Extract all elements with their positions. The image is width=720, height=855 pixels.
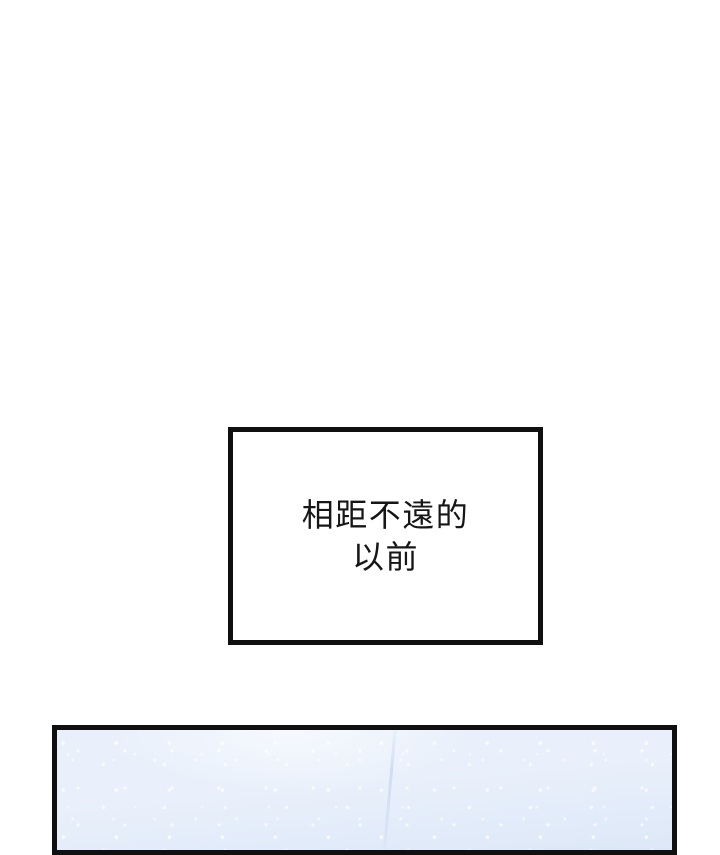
- sparkle-overlay: [57, 730, 672, 850]
- page-background: 相距不遠的 以前: [0, 0, 720, 800]
- scene-panel: [52, 725, 677, 855]
- light-streak: [381, 725, 397, 855]
- caption-panel: 相距不遠的 以前: [228, 427, 543, 645]
- caption-text-line-2: 以前: [352, 536, 419, 578]
- caption-text-line-1: 相距不遠的: [302, 494, 470, 536]
